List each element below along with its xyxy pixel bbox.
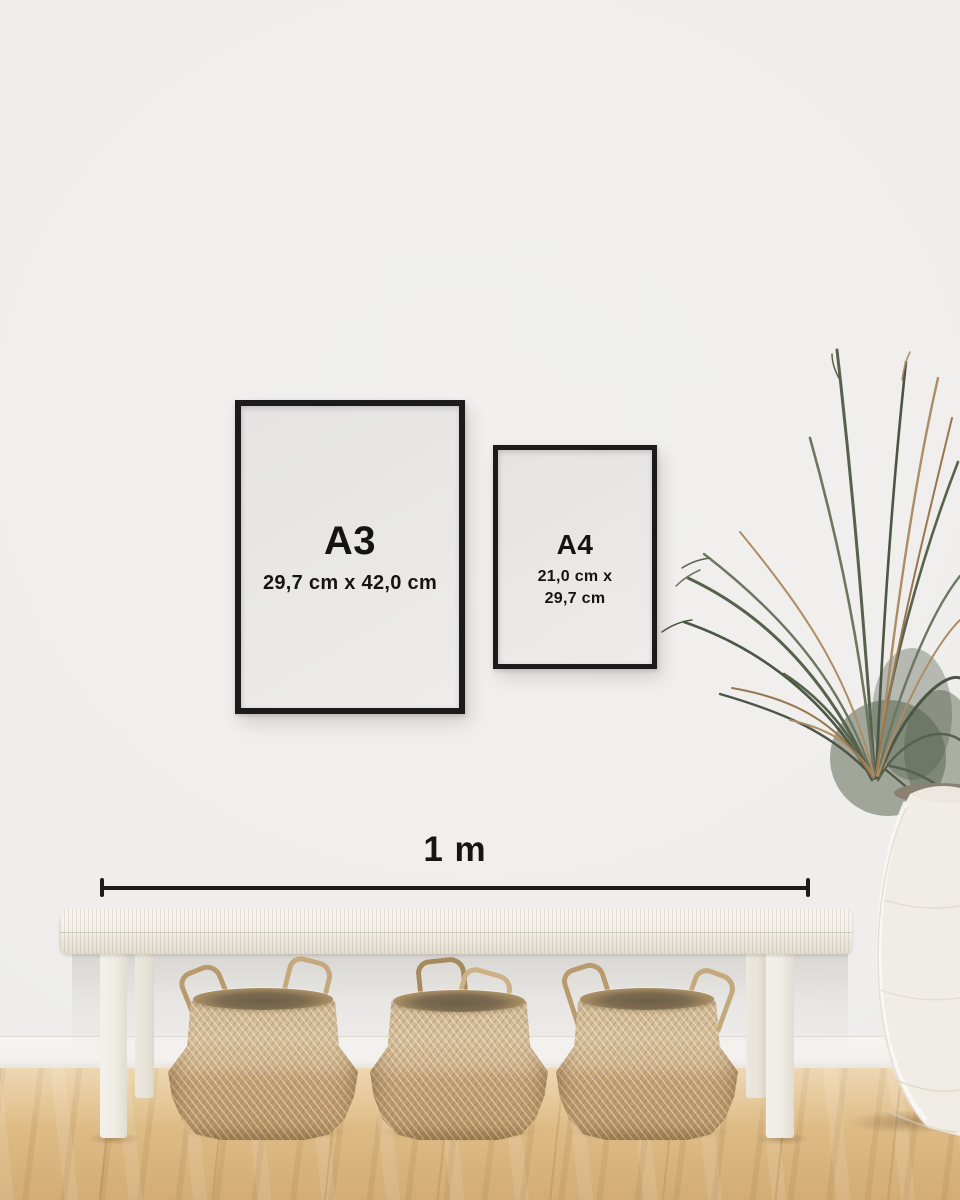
basket-rim <box>193 988 334 1010</box>
frame-a4-dimensions: 21,0 cm x 29,7 cm <box>538 566 613 609</box>
seagrass-basket-middle <box>370 944 548 1140</box>
white-stone-urn <box>856 780 960 1142</box>
seagrass-basket-left <box>168 954 358 1140</box>
frame-a3-label: A3 <box>324 521 376 561</box>
basket-body <box>370 998 548 1140</box>
frame-a4: A4 21,0 cm x 29,7 cm <box>493 445 657 669</box>
palm-plant <box>640 320 960 820</box>
ruler-line <box>102 886 808 890</box>
frame-a4-label: A4 <box>557 531 594 559</box>
bench-leg-back-right <box>746 950 766 1098</box>
poster-size-guide-photo: A3 29,7 cm x 42,0 cm A4 21,0 cm x 29,7 c… <box>0 0 960 1200</box>
bench-leg-front-left <box>100 950 127 1138</box>
frame-a3: A3 29,7 cm x 42,0 cm <box>235 400 465 714</box>
bench-leg-front-right <box>766 950 794 1138</box>
frame-a4-dimensions-line1: 21,0 cm x <box>538 566 613 588</box>
frame-a3-dimensions: 29,7 cm x 42,0 cm <box>263 570 437 597</box>
ruler-label: 1 m <box>355 830 555 870</box>
basket-body <box>556 998 738 1140</box>
basket-body <box>168 998 358 1140</box>
basket-rim <box>580 988 715 1010</box>
ruler-tick-left <box>100 878 104 897</box>
frame-a4-paper: A4 21,0 cm x 29,7 cm <box>498 450 652 664</box>
frame-a4-dimensions-line2: 29,7 cm <box>538 588 613 610</box>
seagrass-basket-right <box>556 954 738 1140</box>
frame-a3-paper: A3 29,7 cm x 42,0 cm <box>241 406 459 708</box>
bench-leg-back-left <box>135 950 154 1098</box>
basket-rim <box>393 990 525 1012</box>
ruler-tick-right <box>806 878 810 897</box>
